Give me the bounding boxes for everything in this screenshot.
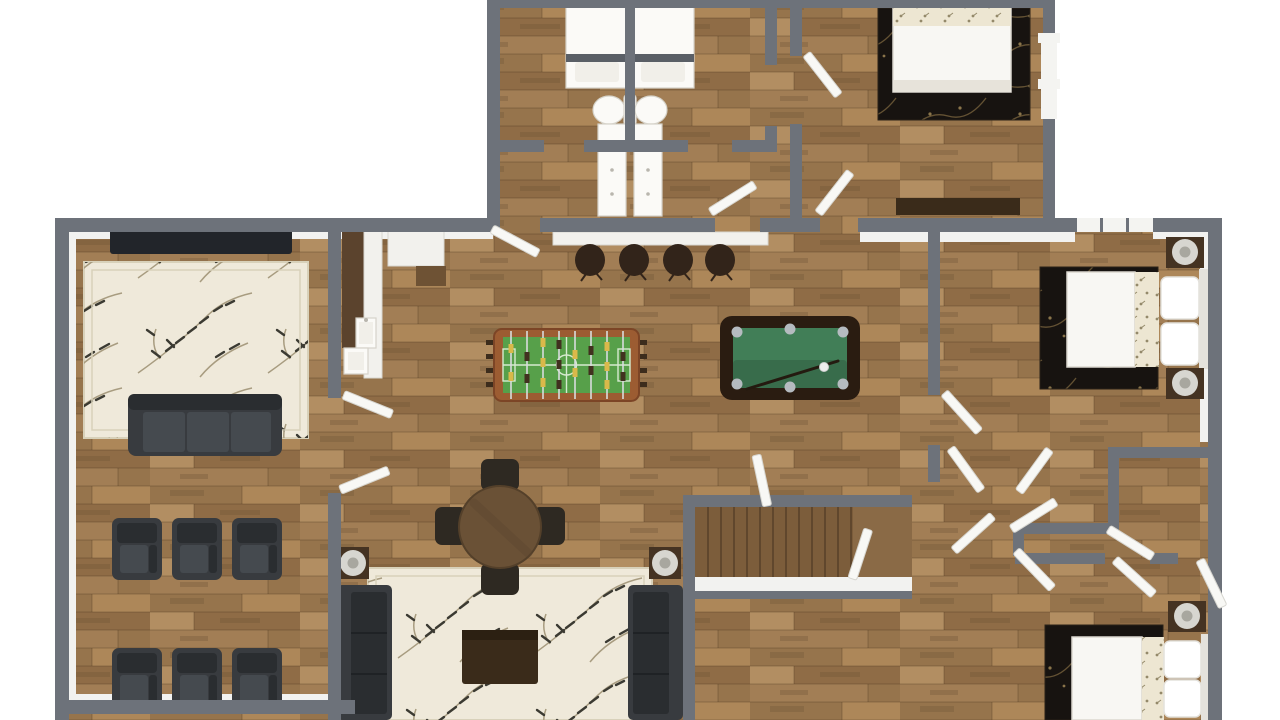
recliner-chair	[112, 518, 162, 580]
window-top-right	[1077, 218, 1153, 232]
table-lamp	[1174, 603, 1200, 629]
family-sofa-left	[337, 585, 392, 720]
dresser	[896, 198, 1020, 215]
nightstand-bottom	[1166, 368, 1204, 399]
wall-segment	[683, 495, 695, 720]
wall-segment	[55, 700, 355, 714]
wall-segment	[928, 445, 940, 482]
recliner-chair	[172, 518, 222, 580]
table-lamp	[1172, 370, 1198, 396]
kitchenette-appliance	[416, 266, 446, 286]
wall-segment	[487, 0, 500, 232]
foosball-table	[486, 329, 647, 401]
bed	[1067, 269, 1208, 369]
wall-segment	[1108, 447, 1119, 534]
staircase	[695, 507, 912, 577]
wall-segment	[760, 218, 820, 232]
vanity-right	[634, 124, 662, 216]
cue-ball	[820, 363, 829, 372]
recliner-chair	[232, 518, 282, 580]
wall-segment	[55, 218, 500, 232]
shower-right	[632, 0, 694, 88]
wall-segment	[928, 232, 940, 395]
end-table-right	[649, 547, 681, 579]
wall-segment	[1208, 218, 1222, 720]
wall-segment	[328, 232, 341, 398]
nightstand	[1168, 601, 1206, 632]
wall-segment	[540, 218, 715, 232]
wall-segment	[683, 495, 912, 507]
bed	[1072, 634, 1209, 720]
nightstand-top	[1166, 237, 1204, 268]
wall-segment	[790, 124, 802, 218]
wall-segment	[625, 0, 635, 152]
recliner-row-front	[112, 518, 282, 580]
wall-segment	[765, 0, 777, 65]
shower-left	[566, 0, 628, 88]
wall-segment	[328, 493, 341, 720]
family-sofa-right	[628, 585, 683, 720]
wall-segment	[1112, 447, 1208, 458]
wall-segment	[765, 126, 777, 152]
wall-segment	[584, 140, 688, 152]
table-lamp	[652, 550, 678, 576]
wall-segment	[858, 218, 1077, 232]
window-bedroom-side	[1038, 33, 1060, 119]
stair-side-wall	[695, 577, 912, 591]
theater-sofa	[128, 394, 282, 456]
floor-plan-stage	[0, 0, 1280, 720]
wall-segment	[790, 0, 802, 56]
coffee-table	[462, 630, 538, 684]
wall-segment	[500, 140, 544, 152]
bar-counter	[553, 232, 768, 245]
table-lamp	[1172, 239, 1198, 265]
end-table-left	[337, 547, 369, 579]
vanity-left	[598, 124, 626, 216]
pool-table	[720, 316, 860, 400]
wall-segment	[695, 591, 912, 599]
table-lamp	[340, 550, 366, 576]
bed	[893, 0, 1011, 92]
floor-plan	[0, 0, 1280, 720]
wall-segment	[55, 218, 69, 720]
wall-segment	[732, 140, 765, 152]
